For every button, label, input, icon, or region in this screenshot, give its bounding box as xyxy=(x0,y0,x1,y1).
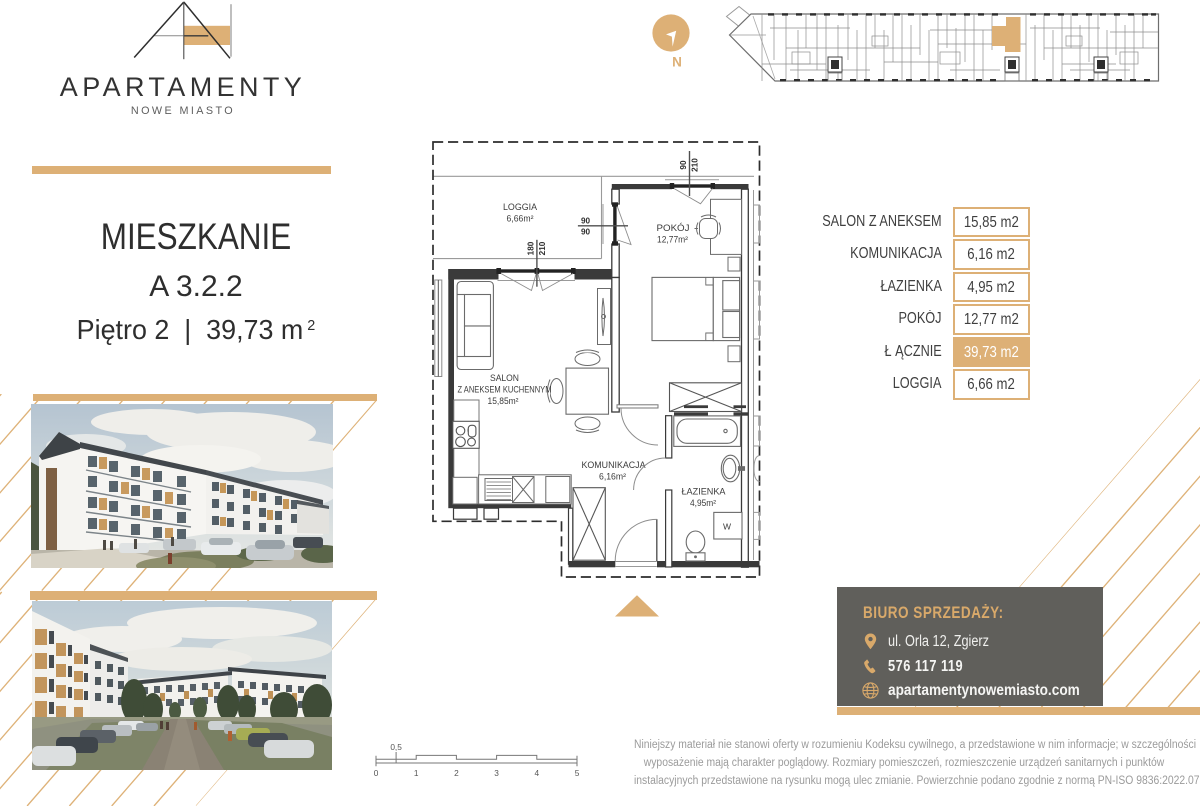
svg-text:Z ANEKSEM KUCHENNYM: Z ANEKSEM KUCHENNYM xyxy=(458,384,552,395)
svg-text:180: 180 xyxy=(527,241,536,255)
svg-text:1: 1 xyxy=(414,768,419,778)
svg-text:6,66m²: 6,66m² xyxy=(507,214,534,224)
svg-text:90: 90 xyxy=(679,160,688,170)
svg-text:90: 90 xyxy=(581,217,591,226)
svg-text:N: N xyxy=(672,55,682,70)
svg-text:2: 2 xyxy=(454,768,459,778)
svg-text:210: 210 xyxy=(538,241,547,255)
svg-text:15,85m²: 15,85m² xyxy=(488,396,519,406)
svg-text:90: 90 xyxy=(581,228,591,237)
svg-text:SALON: SALON xyxy=(490,372,519,383)
svg-text:4: 4 xyxy=(534,768,539,778)
svg-text:0,5: 0,5 xyxy=(390,742,402,752)
svg-text:W: W xyxy=(723,522,731,532)
svg-text:5: 5 xyxy=(575,768,580,778)
svg-text:3: 3 xyxy=(494,768,499,778)
svg-text:4,95m²: 4,95m² xyxy=(690,498,716,508)
svg-text:KOMUNIKACJA: KOMUNIKACJA xyxy=(582,459,647,470)
svg-text:6,16m²: 6,16m² xyxy=(599,472,626,482)
svg-text:210: 210 xyxy=(691,158,700,172)
svg-text:12,77m²: 12,77m² xyxy=(657,235,688,245)
svg-text:LOGGIA: LOGGIA xyxy=(503,201,538,212)
svg-text:0: 0 xyxy=(374,768,379,778)
svg-text:ŁAZIENKA: ŁAZIENKA xyxy=(682,486,727,497)
svg-text:POKÓJ: POKÓJ xyxy=(657,222,690,233)
